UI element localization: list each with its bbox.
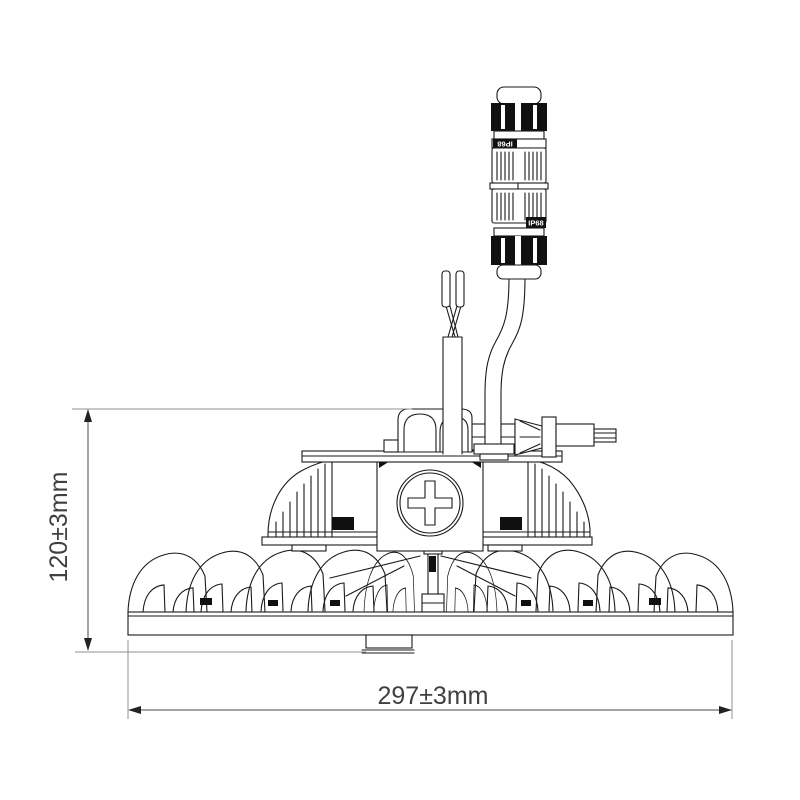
technical-drawing-page: IP68 bbox=[0, 0, 800, 800]
gland-nut bbox=[542, 417, 556, 457]
wire-ferrules bbox=[442, 271, 464, 307]
cable-entry-collar bbox=[474, 444, 514, 454]
heatsink-fins bbox=[128, 546, 733, 613]
connector-bottom-cap bbox=[497, 265, 541, 279]
driver-foot-right bbox=[488, 545, 522, 551]
arrow-left-icon bbox=[128, 706, 141, 714]
connector-top-cap bbox=[497, 87, 541, 104]
ip68-label-top: IP68 bbox=[497, 140, 512, 149]
connector-coupling-joint bbox=[490, 183, 548, 189]
ip68-label-bottom: IP68 bbox=[528, 219, 543, 228]
connector-barrel bbox=[556, 424, 594, 446]
mounting-box bbox=[377, 459, 483, 551]
connector-gland-top bbox=[491, 103, 547, 131]
cable-gland-cone bbox=[515, 419, 542, 455]
arrow-down-icon bbox=[84, 638, 92, 651]
lens-ring-band bbox=[128, 612, 733, 653]
width-dimension-label: 297±3mm bbox=[378, 682, 489, 710]
ip68-connector: IP68 bbox=[490, 87, 548, 279]
driver-foot-left bbox=[292, 545, 326, 551]
connector-blade-terminal bbox=[594, 429, 616, 442]
connector-gland-bottom bbox=[491, 236, 547, 265]
technical-drawing-canvas: IP68 bbox=[0, 0, 800, 800]
vent-right bbox=[500, 517, 522, 530]
stripped-wires bbox=[446, 306, 461, 337]
height-dimension-label: 120±3mm bbox=[45, 472, 73, 583]
connector-ring-bottom bbox=[494, 228, 544, 236]
connector-body-lower: IP68 bbox=[492, 189, 546, 228]
bottom-sensor-plug bbox=[362, 635, 414, 653]
connector-ring-top bbox=[494, 131, 544, 139]
vent-left bbox=[332, 517, 354, 530]
power-cable bbox=[442, 271, 464, 454]
connector-body-upper bbox=[492, 148, 546, 183]
arrow-right-icon bbox=[719, 706, 732, 714]
arrow-up-icon bbox=[84, 409, 92, 422]
